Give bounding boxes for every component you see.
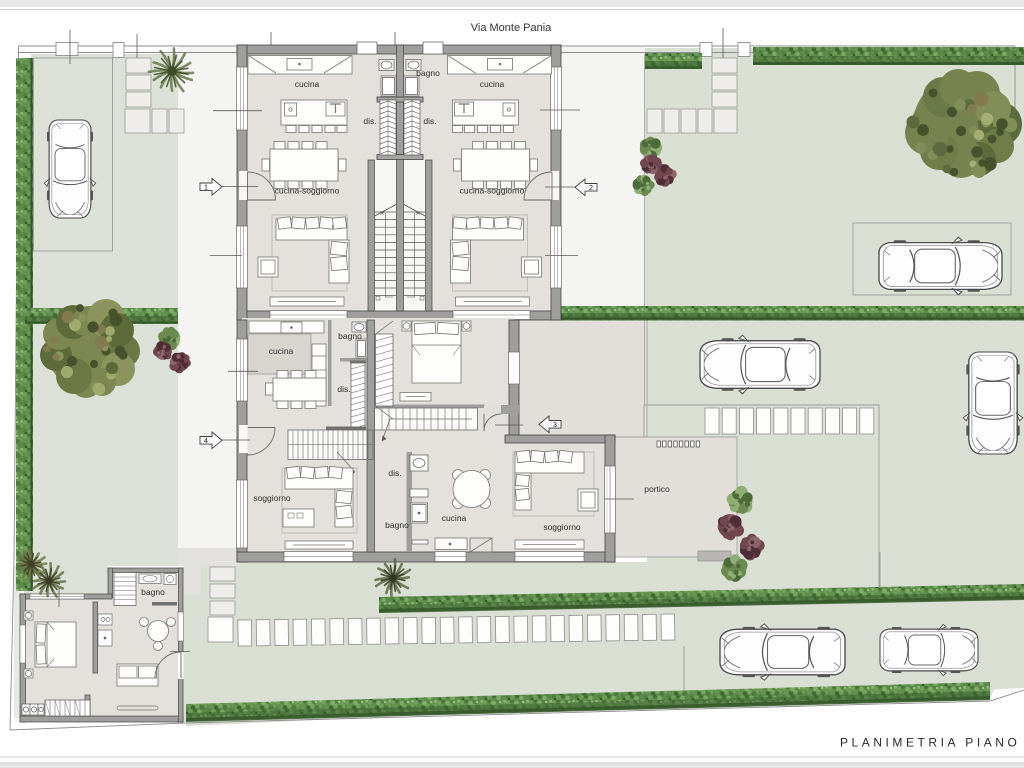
svg-text:bagno: bagno (385, 520, 409, 530)
svg-text:cucina: cucina (480, 79, 505, 89)
svg-text:bagno: bagno (338, 331, 362, 341)
svg-text:portico: portico (644, 484, 670, 494)
svg-text:bagno: bagno (416, 68, 440, 78)
svg-text:cucina: cucina (442, 513, 467, 523)
svg-text:cucina: cucina (295, 79, 320, 89)
svg-text:dis.: dis. (388, 468, 401, 478)
svg-text:PLANIMETRIA PIANO: PLANIMETRIA PIANO (840, 736, 1020, 750)
svg-text:soggiorno: soggiorno (253, 493, 291, 503)
svg-text:dis.: dis. (363, 116, 376, 126)
svg-text:Via Monte Pania: Via Monte Pania (471, 22, 552, 34)
svg-text:cucina-soggiorno: cucina-soggiorno (275, 186, 340, 196)
svg-text:bagno: bagno (141, 587, 165, 597)
svg-text:soggiorno: soggiorno (543, 522, 581, 532)
svg-text:dis.: dis. (337, 384, 350, 394)
svg-text:cucina: cucina (269, 346, 294, 356)
svg-text:cucina-soggiorno: cucina-soggiorno (460, 186, 525, 196)
svg-text:1: 1 (204, 183, 208, 192)
svg-text:4: 4 (204, 436, 208, 445)
svg-text:dis.: dis. (423, 116, 436, 126)
svg-text:3: 3 (553, 420, 557, 429)
svg-text:2: 2 (589, 183, 593, 192)
